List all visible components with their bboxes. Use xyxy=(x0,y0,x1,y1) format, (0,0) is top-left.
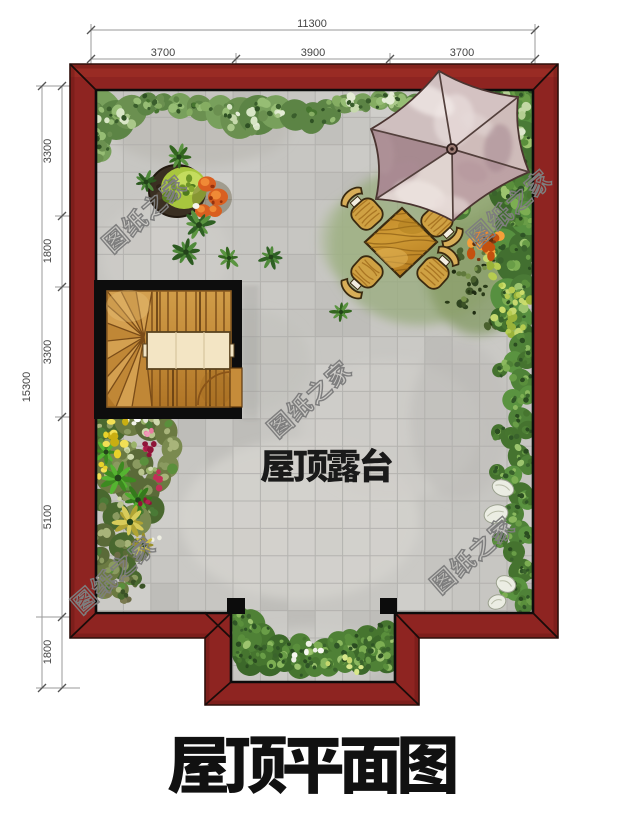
svg-text:3900: 3900 xyxy=(301,47,325,59)
svg-text:3300: 3300 xyxy=(42,340,54,364)
svg-text:3300: 3300 xyxy=(42,139,54,163)
svg-text:5100: 5100 xyxy=(42,505,54,529)
svg-text:3700: 3700 xyxy=(450,47,474,59)
svg-text:15300: 15300 xyxy=(21,372,33,403)
svg-text:1800: 1800 xyxy=(42,239,54,263)
svg-text:1800: 1800 xyxy=(42,640,54,664)
svg-text:3700: 3700 xyxy=(151,47,175,59)
svg-text:11300: 11300 xyxy=(297,18,327,30)
